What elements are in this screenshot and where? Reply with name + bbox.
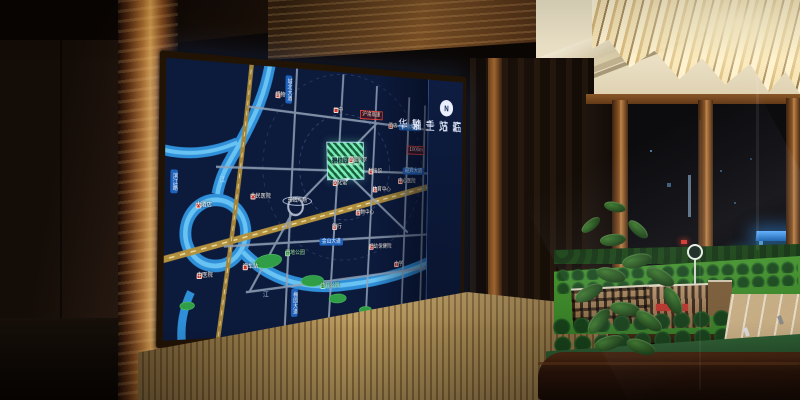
compass-icon: N <box>440 100 453 117</box>
slogan-line-2: 汇万千繁华 <box>395 118 463 139</box>
road-label: 城北大道 <box>285 75 292 104</box>
vertical-slogan: 临站主轴 汇万千繁华 <box>428 128 462 130</box>
road-label: 金山大道 <box>319 238 343 245</box>
river-name-char: 江 <box>219 175 225 185</box>
map-display: 碧桂园项目 人民医院 大酒店 东站广场 博物馆 一中 沪渝高速 酒店 实验小学 … <box>163 58 429 341</box>
road-label: 梅园大道 <box>291 289 298 317</box>
screen-side-panel: N 临站主轴 汇万千繁华 <box>425 80 463 327</box>
road-label: 滨江路 <box>170 169 178 193</box>
showroom-photo: 碧桂园项目 人民医院 大酒店 东站广场 博物馆 一中 沪渝高速 酒店 实验小学 … <box>0 0 800 400</box>
map-edge-shade <box>373 75 429 329</box>
river-name-char: 江 <box>263 290 269 300</box>
